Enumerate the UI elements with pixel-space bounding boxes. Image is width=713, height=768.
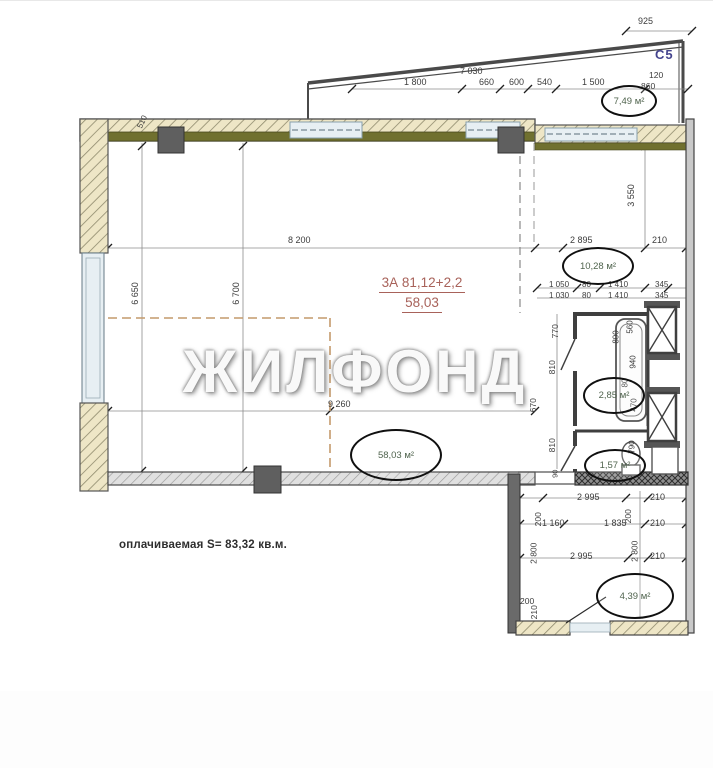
dashed-zone-lines <box>108 143 534 471</box>
loggia-door <box>570 623 610 632</box>
washer <box>652 447 678 474</box>
column <box>254 466 281 493</box>
right-wall <box>686 119 694 633</box>
left-window <box>82 253 104 403</box>
gallery-viewer: 9257 0301 8006606005401 5001208605108 20… <box>0 0 713 768</box>
bathtub <box>616 319 646 421</box>
outer-walls <box>80 119 694 633</box>
door-leaf <box>561 446 575 471</box>
pointer-line <box>566 597 606 623</box>
balcony-canopy <box>308 41 683 123</box>
column <box>498 127 524 153</box>
column <box>158 127 184 153</box>
floorplan-image[interactable]: 9257 0301 8006606005401 5001208605108 20… <box>0 1 713 691</box>
viewer-controls: ▶ ◀ ▶ 1/3 3к — 83,32 (на некрасова) <box>0 691 713 768</box>
door-leaf <box>561 339 575 370</box>
floorplan-linework <box>0 1 713 691</box>
left-wall <box>80 119 108 253</box>
bottom-wall <box>108 472 535 485</box>
